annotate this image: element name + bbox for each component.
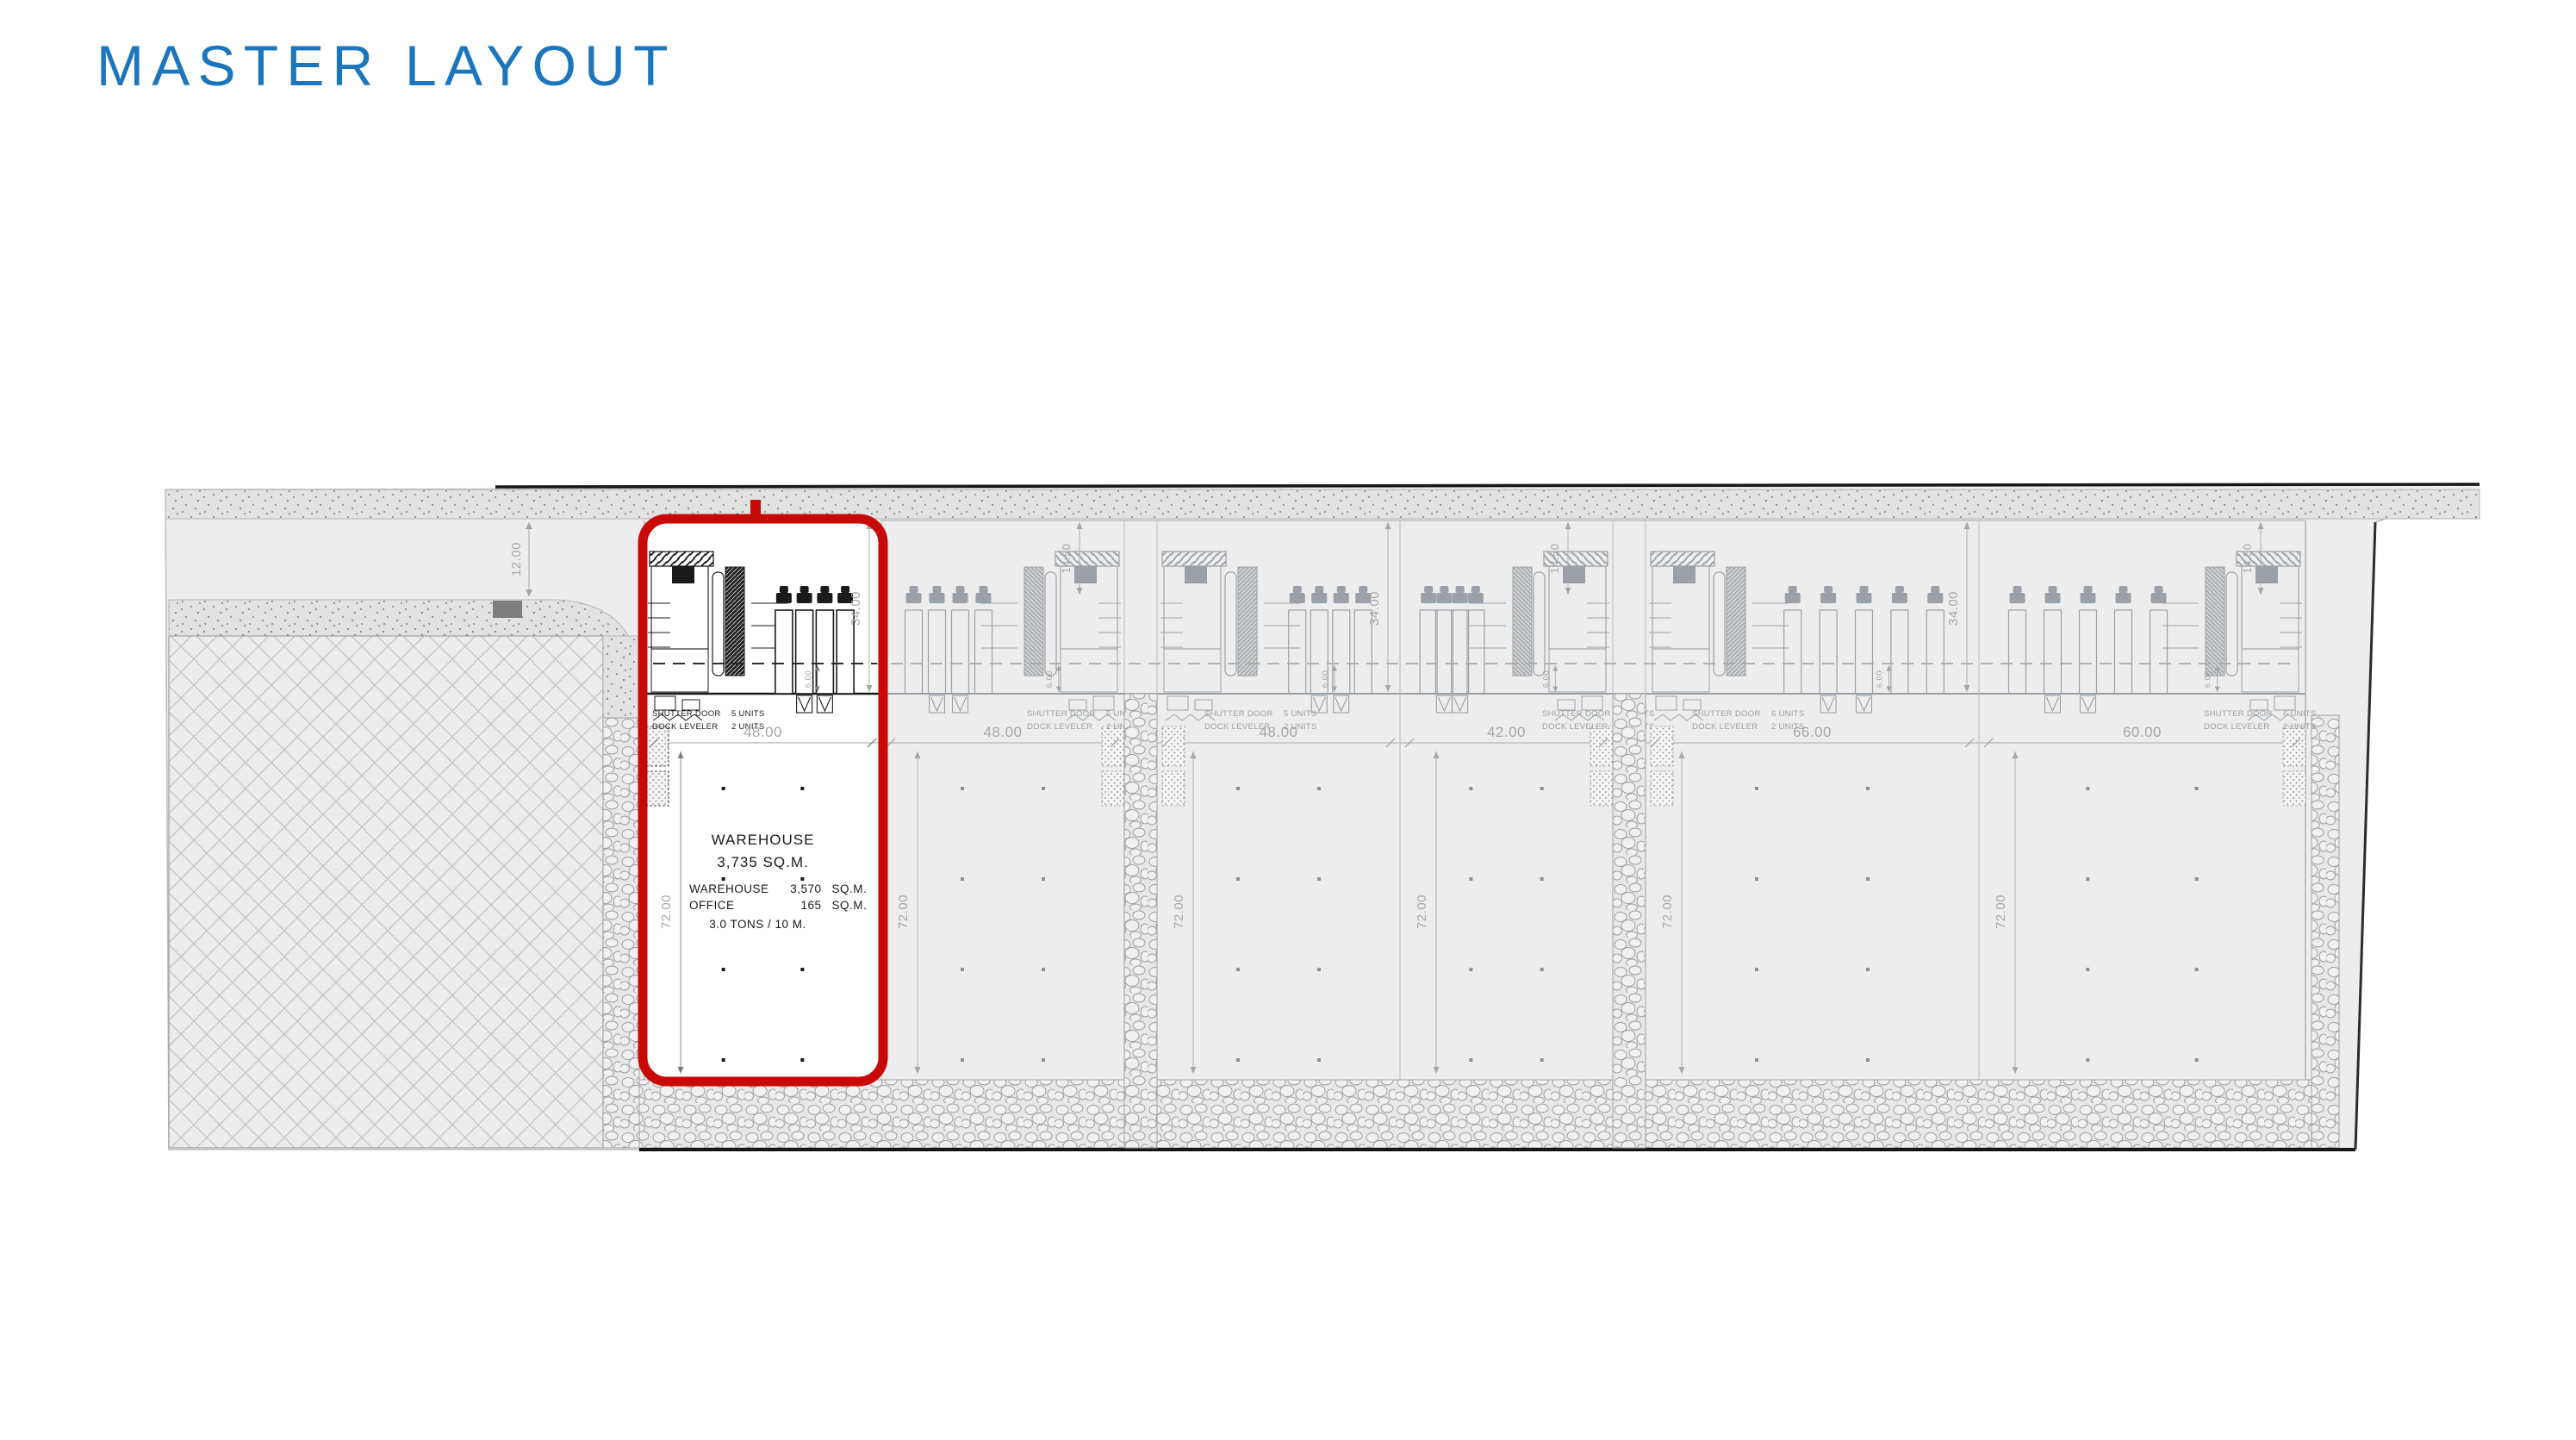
plan-text: SHUTTER DOOR [652, 709, 721, 719]
plan-text: 34.00 [1946, 591, 1961, 626]
plan-text: 6.00 [1541, 670, 1551, 689]
plan-text: 6.00 [1876, 670, 1885, 689]
plan-text: 165 [800, 899, 821, 912]
plan-text: 72.00 [1994, 895, 2008, 929]
plan-text: 6 UNITS [1771, 709, 1805, 719]
plan-text: 72.00 [659, 895, 674, 929]
plan-text: 6.00 [1045, 670, 1055, 689]
plan-text: DOCK LEVELER [1027, 722, 1092, 732]
plan-text: WAREHOUSE [689, 882, 769, 895]
plan-text: DOCK LEVELER [1542, 722, 1608, 732]
plan-text: 34.00 [849, 591, 863, 626]
plan-text: 14.50 [2241, 543, 2254, 573]
plan-text: DOCK LEVELER [652, 722, 718, 732]
highlight-stub [750, 500, 761, 522]
plan-text: 66.00 [1793, 724, 1832, 740]
stone-divider [1613, 694, 1646, 1148]
plan-text: SHUTTER DOOR [1692, 709, 1761, 719]
plan-text: 72.00 [1172, 895, 1186, 929]
plan-text: OFFICE [689, 899, 735, 912]
plan-text: 3.0 TONS / 10 M. [709, 918, 806, 931]
plan-text: SHUTTER DOOR [1542, 709, 1611, 719]
plan-text: 60.00 [2123, 724, 2162, 740]
plan-text: 2 UNITS [2283, 722, 2317, 732]
plan-text: 12.00 [509, 542, 524, 577]
plan-text: 6.00 [2204, 670, 2213, 689]
plan-text: 42.00 [1487, 724, 1526, 740]
plan-text: 6 UNITS [2283, 709, 2317, 719]
plan-text: 6.00 [804, 670, 813, 689]
plan-text: 14.50 [1548, 543, 1561, 573]
plan-text: 48.00 [744, 724, 782, 740]
plan-text: 72.00 [1415, 895, 1429, 929]
stone-divider [1124, 694, 1157, 1148]
plan-text: SHUTTER DOOR [1027, 709, 1096, 719]
plan-text: 14.50 [1060, 543, 1073, 573]
plan-text: 48.00 [1259, 724, 1297, 740]
plan-text: WAREHOUSE [712, 832, 815, 848]
plan-text: SQ.M. [832, 899, 868, 912]
plan-text: 72.00 [1660, 895, 1675, 929]
plan-text: DOCK LEVELER [1692, 722, 1758, 732]
plan-text: SQ.M. [832, 882, 868, 895]
plan-text: 5 UNITS [731, 709, 765, 719]
slide: MASTER LAYOUT [0, 0, 2576, 1440]
plan-text: 3,570 [790, 882, 821, 895]
plan-text: 5 UNITS [1284, 709, 1317, 719]
plan-text: SHUTTER DOOR [1204, 709, 1273, 719]
plan-text: SHUTTER DOOR [2204, 709, 2273, 719]
plan-text: DOCK LEVELER [2204, 722, 2269, 732]
plan-text: 48.00 [983, 724, 1022, 740]
plan-text: 6.00 [1321, 670, 1330, 689]
plan-text: 34.00 [1367, 591, 1382, 626]
plan-text: 3,735 SQ.M. [717, 854, 808, 870]
crosshatch-parcel [169, 636, 603, 1148]
master-plan-drawing: 12.00SHUTTER DOOR5 UNITSDOCK LEVELER2 UN… [0, 0, 2576, 1440]
plan-text: 72.00 [896, 895, 911, 929]
gate-block [493, 601, 522, 618]
